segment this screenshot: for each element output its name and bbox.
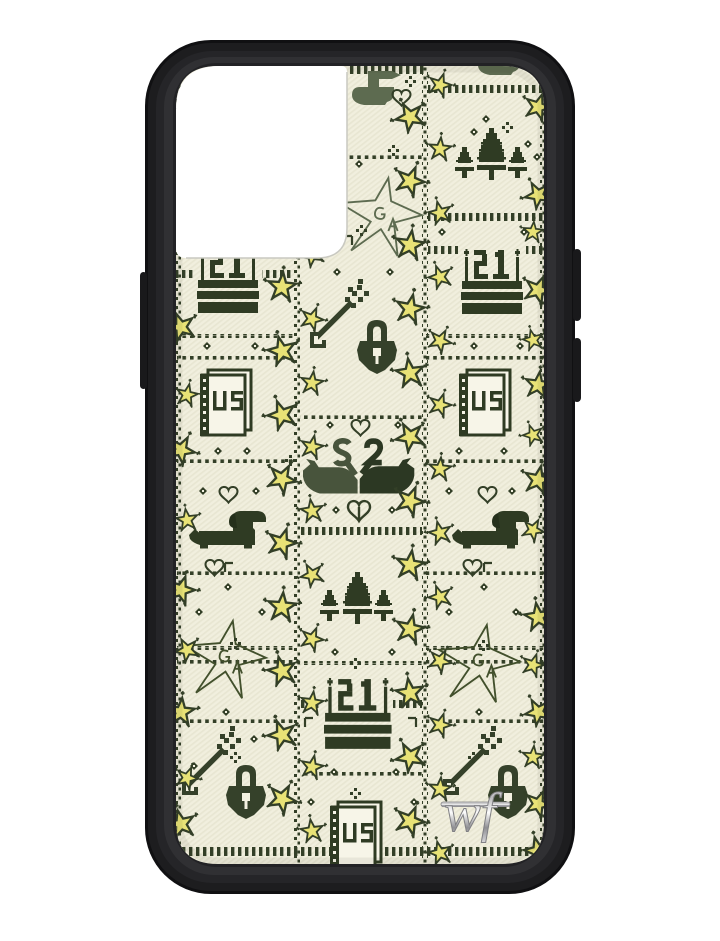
svg-text:wf: wf <box>444 782 503 843</box>
